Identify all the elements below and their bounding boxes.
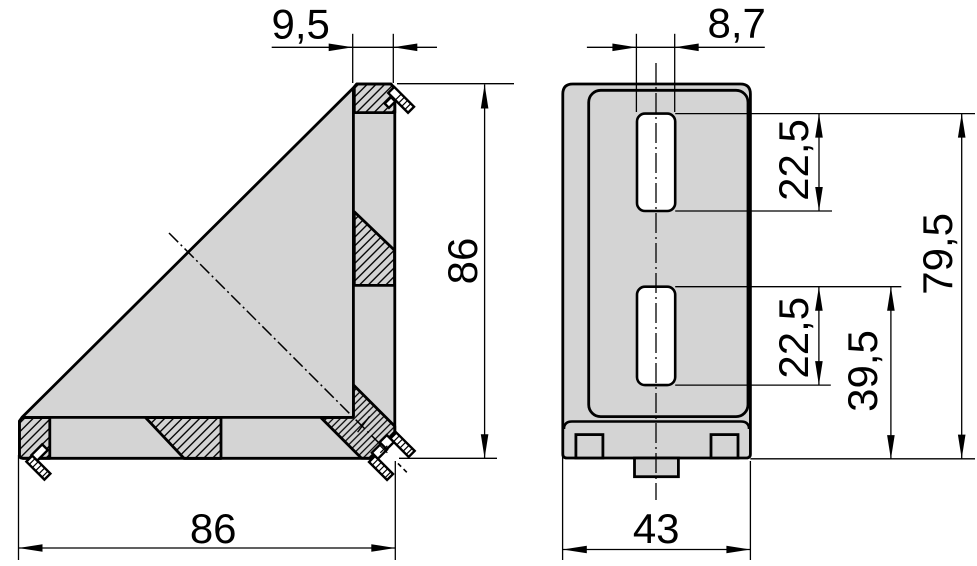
svg-text:8,7: 8,7 bbox=[708, 0, 766, 47]
svg-text:39,5: 39,5 bbox=[839, 330, 886, 412]
svg-text:79,5: 79,5 bbox=[914, 213, 961, 295]
svg-text:86: 86 bbox=[190, 505, 237, 552]
svg-text:43: 43 bbox=[633, 505, 680, 552]
svg-text:9,5: 9,5 bbox=[272, 1, 330, 48]
svg-text:22,5: 22,5 bbox=[770, 297, 817, 379]
svg-text:22,5: 22,5 bbox=[770, 119, 817, 201]
svg-text:86: 86 bbox=[439, 238, 486, 285]
